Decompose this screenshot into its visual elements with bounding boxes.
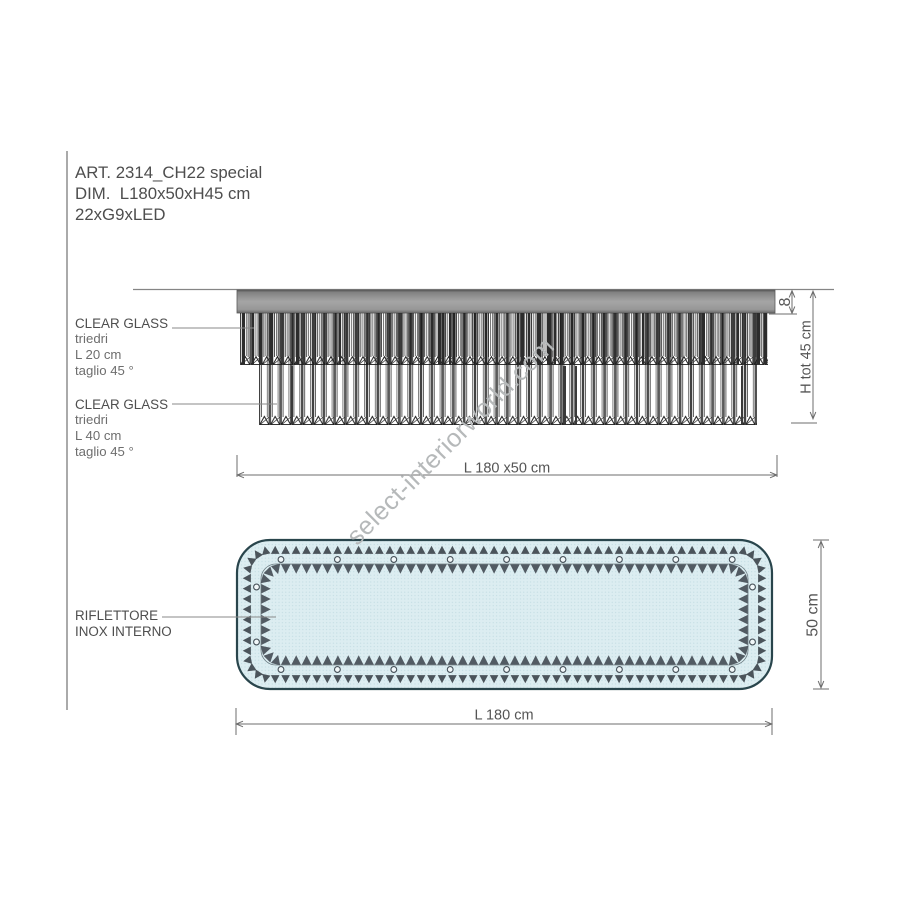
svg-text:22xG9xLED: 22xG9xLED <box>75 205 165 224</box>
svg-text:taglio 45 °: taglio 45 ° <box>75 363 134 378</box>
svg-text:50 cm: 50 cm <box>805 593 822 637</box>
svg-text:CLEAR GLASS: CLEAR GLASS <box>75 397 168 412</box>
svg-text:INOX INTERNO: INOX INTERNO <box>75 624 172 639</box>
svg-text:CLEAR GLASS: CLEAR GLASS <box>75 316 168 331</box>
svg-text:triedri: triedri <box>75 412 108 427</box>
svg-text:taglio 45 °: taglio 45 ° <box>75 444 134 459</box>
svg-text:L 180 cm: L 180 cm <box>474 708 533 724</box>
svg-text:L 20 cm: L 20 cm <box>75 347 121 362</box>
svg-text:DIM. L180x50xH45 cm: DIM. L180x50xH45 cm <box>75 184 250 203</box>
svg-text:triedri: triedri <box>75 331 108 346</box>
svg-text:8: 8 <box>777 297 794 306</box>
svg-text:L 40 cm: L 40 cm <box>75 428 121 443</box>
svg-text:ART. 2314_CH22 special: ART. 2314_CH22 special <box>75 163 262 182</box>
svg-text:H tot 45 cm: H tot 45 cm <box>799 320 815 394</box>
svg-text:L 180 x50 cm: L 180 x50 cm <box>464 461 551 477</box>
svg-text:RIFLETTORE: RIFLETTORE <box>75 608 158 623</box>
